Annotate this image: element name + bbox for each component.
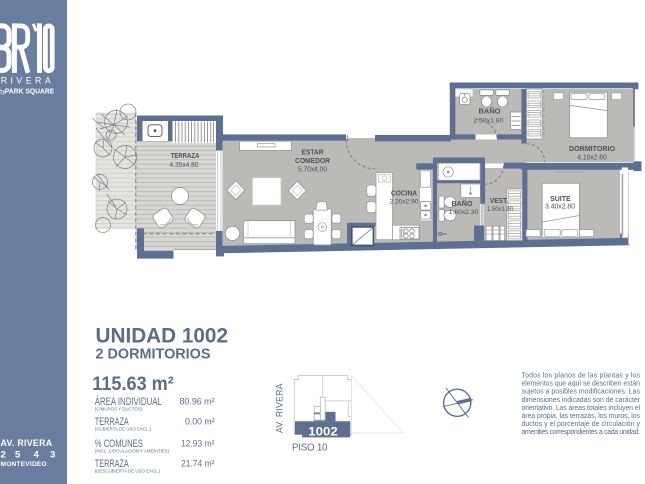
svg-text:COCINA: COCINA: [391, 191, 417, 198]
svg-text:(INCL. CIRCULACIÓN Y AMENITIES: (INCL. CIRCULACIÓN Y AMENITIES): [95, 448, 170, 453]
svg-text:1.60x2.30: 1.60x2.30: [449, 209, 479, 216]
svg-text:115.63 m²: 115.63 m²: [92, 374, 174, 395]
svg-text:4.35x4.80: 4.35x4.80: [170, 162, 199, 169]
svg-text:1002: 1002: [308, 424, 338, 438]
svg-text:UNIDAD 1002: UNIDAD 1002: [96, 323, 229, 347]
svg-text:(CUBIERTA DE USO EXCL.): (CUBIERTA DE USO EXCL.): [95, 427, 152, 432]
svg-text:4.10x2.80: 4.10x2.80: [577, 155, 607, 162]
svg-text:MONTEVIDEO: MONTEVIDEO: [1, 461, 47, 468]
svg-text:(DESCUBIERTA DE USO EXCL.): (DESCUBIERTA DE USO EXCL.): [95, 468, 161, 473]
svg-text:BAÑO: BAÑO: [452, 199, 474, 208]
svg-text:3.40x2.80: 3.40x2.80: [545, 204, 575, 211]
svg-text:SUITE: SUITE: [550, 194, 571, 203]
svg-text:COMEDOR: COMEDOR: [295, 156, 331, 165]
svg-text:AV. RIVERA: AV. RIVERA: [1, 438, 53, 448]
svg-text:(C/MUROS Y DUCTOS): (C/MUROS Y DUCTOS): [95, 406, 143, 411]
svg-text:PISO 10: PISO 10: [292, 443, 328, 454]
svg-text:12.93 m²: 12.93 m²: [181, 439, 215, 450]
svg-text:5.70x4.00: 5.70x4.00: [298, 167, 327, 174]
svg-text:elementos que aquí se describe: elementos que aquí se describen están: [522, 381, 641, 388]
svg-text:amenities correspondientes a c: amenities correspondientes a cada unidad…: [522, 429, 641, 436]
svg-text:5: 5: [15, 449, 21, 460]
svg-text:ductos y el porcentaje de circ: ductos y el porcentaje de circulación y: [522, 421, 641, 428]
svg-text:BAÑO: BAÑO: [479, 107, 502, 116]
svg-text:3: 3: [50, 449, 55, 460]
svg-text:2.20x2.90: 2.20x2.90: [390, 199, 419, 206]
svg-text:dimensiones indicadas son de c: dimensiones indicadas son de carácter: [522, 397, 641, 404]
svg-text:80.96 m²: 80.96 m²: [180, 397, 216, 408]
svg-text:sujetos a posibles modificacio: sujetos a posibles modificaciones. Las: [522, 389, 641, 396]
svg-text:AV. RIVERA: AV. RIVERA: [274, 383, 284, 433]
svg-text:4: 4: [34, 449, 40, 460]
svg-text:área propia, las terrazas, los: área propia, las terrazas, los muros, lo…: [522, 413, 641, 420]
svg-text:2: 2: [1, 449, 6, 460]
svg-text:DORMITORIO: DORMITORIO: [569, 144, 615, 153]
svg-text:Todos los planos de las planta: Todos los planos de las plantas y los: [522, 373, 641, 380]
svg-text:orientativo. Las áreas totales: orientativo. Las áreas totales incluyen …: [522, 405, 641, 412]
svg-text:RIVERA: RIVERA: [1, 76, 54, 86]
svg-text:0.00 m²: 0.00 m²: [185, 417, 215, 428]
svg-text:VEST.: VEST.: [490, 198, 509, 205]
svg-text:TERRAZA: TERRAZA: [171, 151, 200, 160]
svg-text:21.74 m²: 21.74 m²: [181, 459, 215, 470]
svg-text:2 DORMITORIOS: 2 DORMITORIOS: [96, 346, 211, 363]
svg-text:1.50x1.90: 1.50x1.90: [487, 206, 513, 213]
svg-text:PARK SQUARE: PARK SQUARE: [5, 88, 55, 95]
